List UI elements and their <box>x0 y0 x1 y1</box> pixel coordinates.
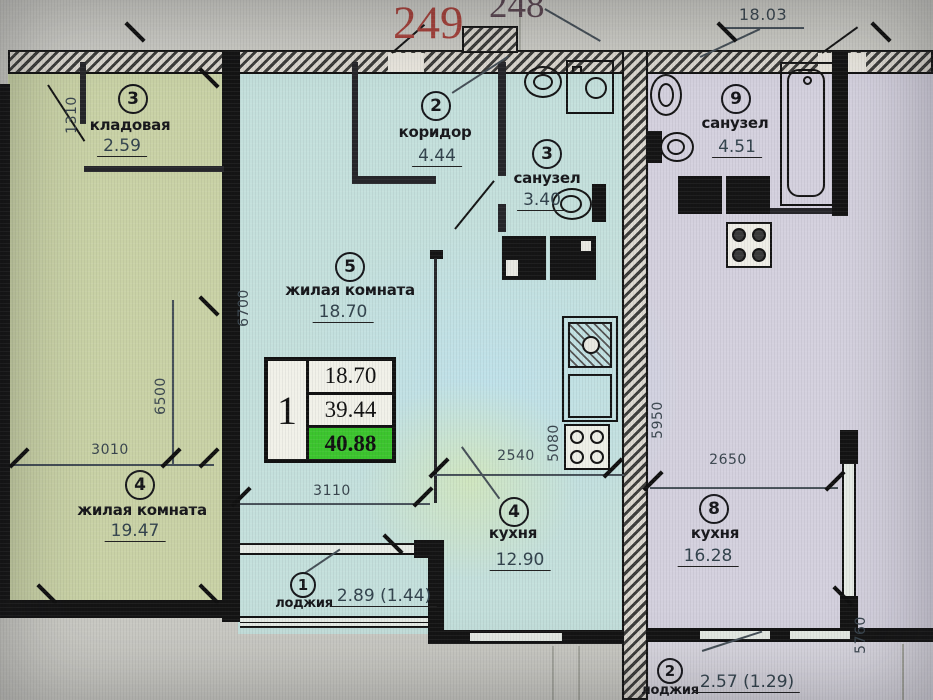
room-number-living-mid: 5 <box>335 252 365 282</box>
room-area-loggia-mid: 2.89 (1.44) <box>331 586 437 607</box>
dimension-3110: 3110 <box>313 483 351 499</box>
kitchen-sink-icon <box>568 322 612 368</box>
stamp-unit-number: 1 <box>268 361 309 459</box>
dimension-line-2540 <box>434 474 624 476</box>
faint-line <box>578 646 580 700</box>
faint-line <box>902 644 904 700</box>
bathtub-icon <box>780 62 834 206</box>
entry-door-gap-mid <box>388 53 424 72</box>
room-number-bathroom-mid: 3 <box>532 139 562 169</box>
sink-icon <box>524 66 562 98</box>
room-number-kitchen-right: 8 <box>699 494 729 524</box>
room-area-corridor: 4.44 <box>412 146 462 167</box>
room-name-kitchen-mid: кухня <box>489 524 537 542</box>
vanity-counter-block <box>678 176 722 214</box>
faint-line <box>552 646 554 700</box>
stove-icon <box>726 222 772 268</box>
leader-248 <box>545 8 601 41</box>
room-area-bathroom-mid: 3.40 <box>517 190 567 211</box>
bathroom-right-wall <box>832 50 848 216</box>
top-wall-notch <box>462 26 518 53</box>
apartment-stamp-table: 1 18.70 39.44 40.88 <box>264 357 396 463</box>
room-name-bathroom-mid: санузел <box>514 169 581 187</box>
room-number-storage-left: 3 <box>118 84 148 114</box>
adjacent-room-area: 18.03 <box>739 5 787 24</box>
room-number-bathroom-right: 9 <box>721 84 751 114</box>
underline-1803 <box>722 27 804 29</box>
dimension-5760: 5760 <box>853 616 869 654</box>
corridor-wall-vertical <box>352 62 358 178</box>
stamp-total-area: 40.88 <box>309 425 392 459</box>
room-name-living-left: жилая комната <box>77 501 207 519</box>
corridor-wall-horizontal <box>352 176 436 184</box>
dimension-line-2650 <box>650 487 838 489</box>
stove-icon <box>564 424 610 470</box>
room-area-living-mid: 18.70 <box>313 302 374 323</box>
room-number-corridor: 2 <box>421 91 451 121</box>
room-name-bathroom-right: санузел <box>702 114 769 132</box>
room-name-kitchen-right: кухня <box>691 524 739 542</box>
bathroom-mid-wall <box>498 62 506 176</box>
toilet-icon <box>660 132 694 162</box>
kitchen-counter <box>562 316 618 422</box>
dimension-line-3010 <box>14 464 214 466</box>
left-bottom-wall <box>0 600 224 618</box>
floor-plan-photo: 249 248 18.03 1 18.70 39.44 40.88 3 клад… <box>0 0 933 700</box>
room-name-living-mid: жилая комната <box>285 281 415 299</box>
room-name-storage-left: кладовая <box>90 116 171 134</box>
dimension-2540: 2540 <box>497 448 535 464</box>
room-area-bathroom-right: 4.51 <box>712 137 762 158</box>
dimension-3010: 3010 <box>91 442 129 458</box>
left-outer-wall <box>0 84 10 618</box>
wall-tick <box>124 21 145 42</box>
storage-wall-horizontal <box>84 166 224 172</box>
loggia-mid-window <box>240 616 428 628</box>
room-number-living-left: 4 <box>125 470 155 500</box>
room-name-loggia-right: лоджия <box>641 683 699 698</box>
dimension-5950: 5950 <box>650 401 666 439</box>
dimension-line-3110 <box>240 503 430 505</box>
room-number-kitchen-mid: 4 <box>499 497 529 527</box>
stamp-living-area: 18.70 <box>309 361 392 392</box>
dimension-6700: 6700 <box>236 289 252 327</box>
dimension-1310: 1310 <box>64 96 80 134</box>
room-area-storage-left: 2.59 <box>97 136 147 157</box>
sink-icon <box>650 74 682 116</box>
toilet-tank <box>592 184 606 222</box>
vent-shaft-icon <box>550 236 596 280</box>
wall-left-middle <box>222 50 240 622</box>
kitchen-mid-window <box>470 631 562 643</box>
unit-number-primary: 249 <box>393 0 464 50</box>
bathroom-mid-wall-stub <box>498 204 506 232</box>
dimension-2650: 2650 <box>709 452 747 468</box>
right-window-stub-top <box>840 430 858 464</box>
bathtub-end-wall <box>770 208 832 214</box>
dimension-6500: 6500 <box>153 377 169 415</box>
room-name-loggia-mid: лоджия <box>275 596 333 611</box>
room-area-living-left: 19.47 <box>105 521 166 542</box>
room-area-loggia-right: 2.57 (1.29) <box>694 672 800 693</box>
dimension-line-6500 <box>172 300 174 465</box>
unit-number-secondary: 248 <box>489 0 545 27</box>
room-name-corridor: коридор <box>399 123 472 141</box>
vent-shaft-icon <box>502 236 546 280</box>
washing-machine-icon <box>566 60 614 114</box>
room-area-kitchen-mid: 12.90 <box>490 550 551 571</box>
room-number-loggia-mid: 1 <box>290 572 316 598</box>
wall-tick <box>716 21 737 42</box>
room-area-kitchen-right: 16.28 <box>678 546 739 567</box>
stamp-reduced-total-area: 39.44 <box>309 392 392 426</box>
loggia-right-window-b <box>790 629 850 641</box>
storage-wall-vertical <box>80 62 86 124</box>
dimension-5080: 5080 <box>546 424 562 462</box>
wall-tick <box>870 21 891 42</box>
vanity-counter-block <box>726 176 770 214</box>
wall-middle-right <box>622 50 648 700</box>
room-number-loggia-right: 2 <box>657 658 683 684</box>
